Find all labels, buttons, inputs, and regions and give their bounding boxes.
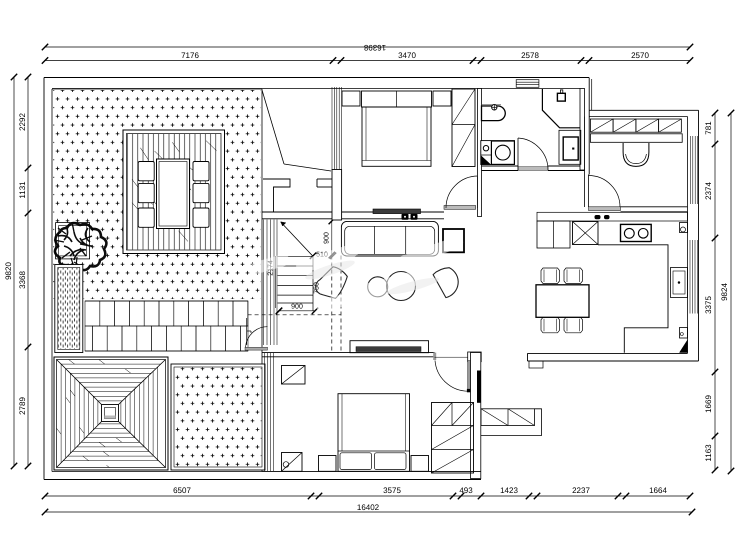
svg-text:16402: 16402	[357, 503, 380, 512]
svg-text:1664: 1664	[649, 486, 667, 495]
svg-text:2570: 2570	[631, 51, 649, 60]
svg-text:3375: 3375	[704, 296, 713, 314]
svg-text:2374: 2374	[704, 182, 713, 200]
svg-text:3368: 3368	[18, 271, 27, 289]
svg-text:900: 900	[324, 232, 331, 244]
svg-text:2789: 2789	[18, 397, 27, 415]
svg-text:1669: 1669	[704, 395, 713, 413]
svg-text:900: 900	[291, 304, 303, 311]
svg-text:6507: 6507	[173, 486, 191, 495]
svg-text:1131: 1131	[18, 181, 27, 199]
svg-text:2237: 2237	[572, 486, 590, 495]
svg-text:3470: 3470	[398, 51, 416, 60]
svg-text:781: 781	[704, 121, 713, 135]
svg-text:1423: 1423	[500, 486, 518, 495]
svg-text:2578: 2578	[521, 51, 539, 60]
svg-text:9824: 9824	[720, 283, 729, 301]
svg-text:9820: 9820	[4, 262, 13, 280]
svg-text:1163: 1163	[704, 444, 713, 462]
svg-text:2292: 2292	[18, 113, 27, 131]
svg-text:493: 493	[459, 486, 473, 495]
svg-text:16398: 16398	[363, 43, 386, 52]
svg-text:3575: 3575	[383, 486, 401, 495]
svg-text:7176: 7176	[181, 51, 199, 60]
